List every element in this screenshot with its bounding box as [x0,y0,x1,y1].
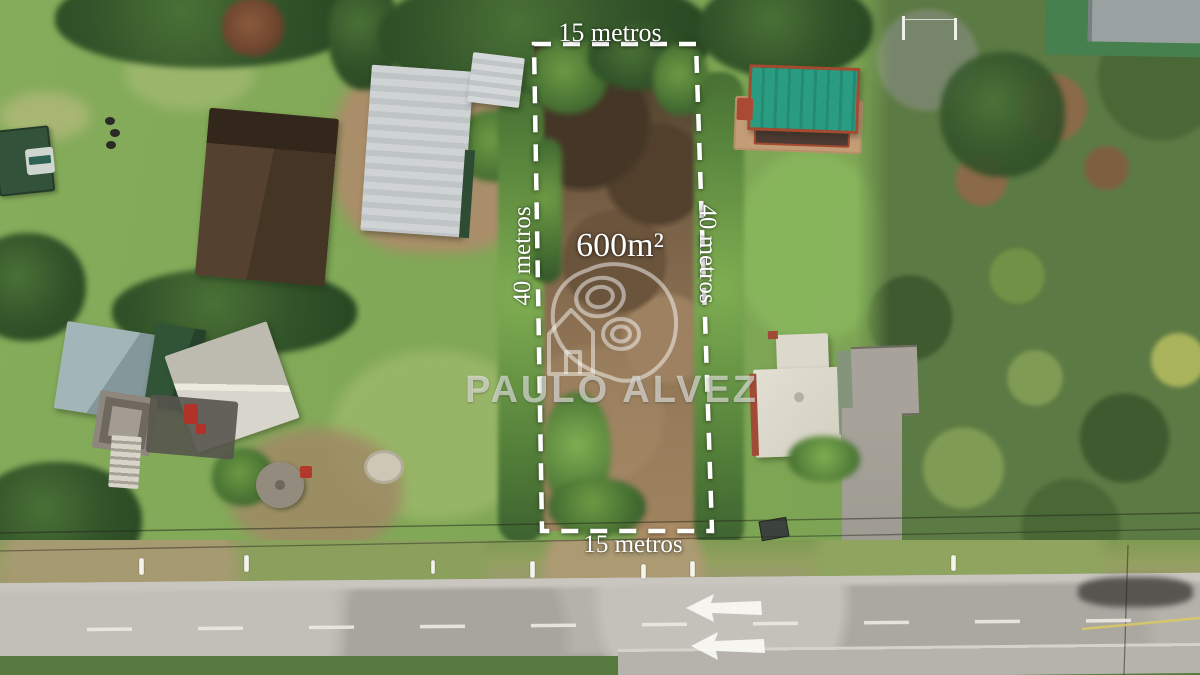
left-depth-label: 40 metros [509,196,537,316]
watermark-brand: PAULO ALVEZ [362,369,862,412]
power-line-drop [1124,545,1128,675]
reflector-posts [139,555,956,579]
right-depth-label: 40 metros [693,194,721,314]
road-center-dashed-line [25,620,1180,630]
area-label: 600m² [540,227,700,265]
bottom-width-label: 15 metros [553,531,713,559]
left-arrow-marking [691,632,765,660]
top-width-label: 15 metros [530,18,690,48]
aerial-photo: 15 metros 15 metros 600m² 40 metros 40 m… [0,0,1200,675]
left-arrow-marking [686,594,762,622]
annotation-overlay [0,0,1200,675]
house-location-pin-logo [549,264,676,381]
